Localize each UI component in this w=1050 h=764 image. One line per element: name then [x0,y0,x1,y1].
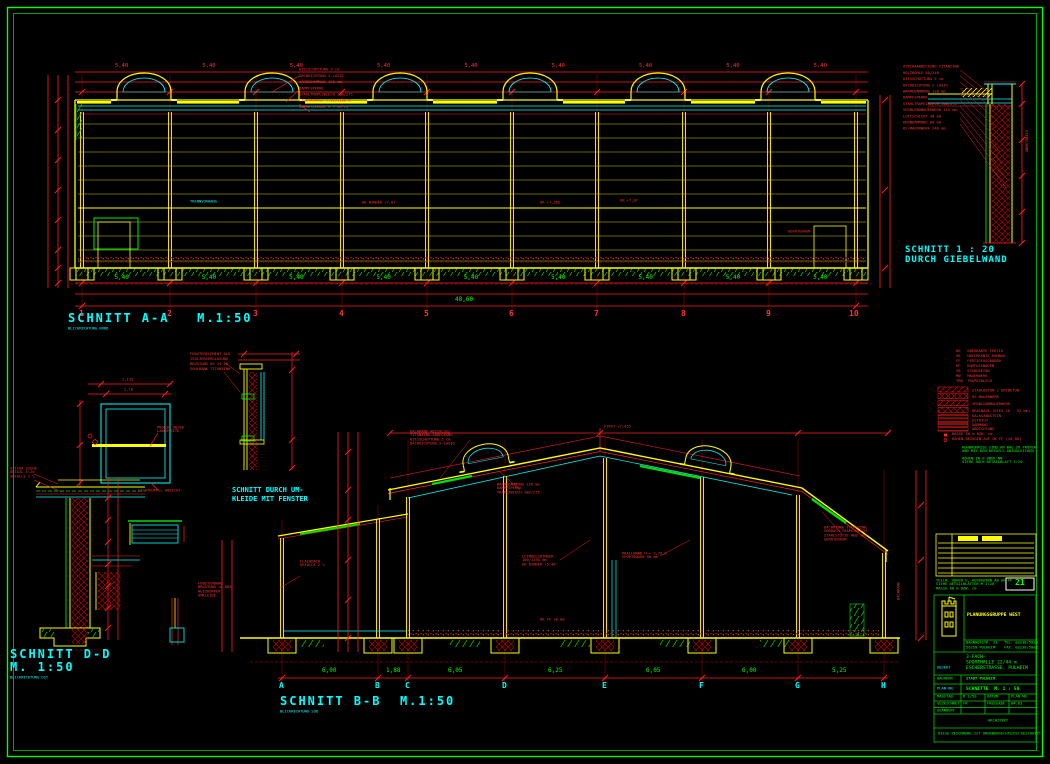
titleblock-footer: DIESE ZEICHNUNG IST URHEBERRECHTLICH GES… [938,732,1041,736]
titleblock-contact-2: 50259 PULHEIM FAX: 02238/5012 [966,646,1038,650]
legend-lined-labels: KALKSANDSTEINESTRICHDÄMMUNGABDICHTUNG [972,414,1050,432]
aa-room-label: GERÄTERAUM [788,230,810,234]
bb-eave-left-callouts: DACHRAND-ABSCHLUSSTITANZINK-ABDECKUNGKIE… [410,430,491,446]
section-bb-title-text: SCHNITT B-B [280,694,381,708]
dd-callouts: ATTIKA SIEHEDETAIL 1:20GEFÄLLE 2 % [10,467,72,479]
section-bb-title: SCHNITT B-B M.1:50 [280,695,455,708]
sky-profil-label: PROFIL 40/80LÄNGSSEITE [157,426,231,434]
axis-letter: F [699,682,704,690]
bb-bay-dim: 6,00 [322,668,336,674]
axis-letter: H [881,682,886,690]
aa-total-dimension: 48,60 [455,297,473,303]
detail-giebel-title-2: DURCH GIEBELWAND [905,256,1008,265]
bb-bay-dim: 1,88 [386,668,400,674]
bb-bay-dim: 6,05 [646,668,660,674]
axis-number: 7 [594,310,599,318]
bb-floor-label: OK FF ±0,00 [540,618,565,622]
axis-number: 9 [766,310,771,318]
titleblock-firm: PLANUNGSGRUPPE WEST [967,612,1021,617]
axis-letter: B [375,682,380,690]
titleblock-datum-label: DATUM [987,695,998,699]
axis-number: 3 [253,310,258,318]
giebel-callouts: ATTIKAABDECKUNG TITANZINKHOLZBOHLE 50/24… [903,64,1002,132]
legend-hatch-labels: STAHLBETON / ORTBETONKS-MAUERWERKVERBLEN… [972,387,1050,414]
axis-number: 2 [167,310,172,318]
bb-eave-right-callouts: DACHRINNE TITANZINKVORDACH TRAPEZBLECHST… [824,526,898,542]
sky-dim-top: 2,135 [122,378,133,382]
axis-letter: E [602,682,607,690]
titleblock-freigabe-value: 04.03 [1011,702,1022,706]
section-aa-title: SCHNITT A-A M.1:50 [68,312,253,325]
bb-bay-dim: 5,25 [832,668,846,674]
titleblock-contact-1: BAHNHOFSTR. 31 TEL: 02238/5010 [966,641,1038,645]
bb-bay-dim: 6,25 [548,668,562,674]
axis-letter: D [502,682,507,690]
axis-letter: C [405,682,410,690]
sky-dim-mid: 2,10 [124,388,133,392]
aa-elevation-label: OK +7,265 [540,201,560,205]
cad-drawing-page: SCHNITT A-A M.1:50 BLICKRICHTUNG NORD 1 … [0,0,1050,764]
bb-bay-dim: 6,05 [448,668,462,674]
section-aa-subtitle: BLICKRICHTUNG NORD [68,327,108,331]
aa-bay-dimensions: 5,405,405,405,405,405,405,405,405,40 [78,275,864,281]
section-dd-title: SCHNITT D-D [10,648,111,661]
sky-caption: LICHTKUPPEL ANSICHT [138,489,181,493]
detail-umkleide-title-1: SCHNITT DURCH UM- [232,487,304,494]
titleblock-masstab-value: M 1/50 [963,695,976,699]
legend-note-1: ROHBAUMASSE SIND AM BAU ZU PRÜFENUND MIT… [962,446,1050,454]
titleblock-project: 3-FACH-SPORTHALLE 22/44 mESCHERSTRASSE, … [966,654,1050,670]
aa-curtain-label: TRENNVORHANG [190,200,217,204]
section-dd-subtitle: BLICKRICHTUNG OST [10,676,48,680]
aa-elevation-label: UK +7,07 [620,199,638,203]
titleblock-bauherr-value: STADT PULHEIM [966,677,995,681]
section-aa-scale: M.1:50 [197,311,252,325]
aa-top-dimensions: 5,405,405,405,405,405,405,405,405,40 [78,64,864,70]
section-dd-scale: M. 1:50 [10,661,75,674]
label-overlay: SCHNITT A-A M.1:50 BLICKRICHTUNG NORD 1 … [0,0,1050,764]
axis-number: 10 [849,310,859,318]
axis-letter: A [279,682,284,690]
bb-side-label: DACHRAND [897,582,901,600]
bb-apex-label: FIRST +7,435 [604,425,631,429]
section-bb-scale: M.1:50 [400,694,455,708]
section-bb-subtitle: BLICKRICHTUNG SÜD [280,710,318,714]
axis-number: 8 [681,310,686,318]
titleblock-objekt-label: OBJEKT [937,666,950,670]
aa-elevation-label: UK BINDER +7,07 [362,201,396,205]
revision-note: TEILW. HÖHEN U. AUFBAUTEN AB OK FFSIEHE … [936,579,1017,591]
aa-roof-callouts: KIESSCHÜTTUNG 5 cmDACHDICHTUNG 2-LAGIGWÄ… [299,67,423,110]
detail-umkleide-title-2: KLEIDE MIT FENSTER [232,496,308,503]
titleblock-gezeichnet-label: GEZEICHNET [937,702,959,706]
legend-abbreviations: OK OBERKANTE FERTIGUK UNTERKANTE ROHBAUF… [956,349,1049,384]
titleblock-plannr-label: PLAN-NR [1011,695,1027,699]
umkleide-callouts: FENSTERELEMENT ALUISOLIERVERGLASUNGBRÜST… [190,352,271,372]
bb-annex-callouts: FENSTERBANDBRÜSTUNG +0,885HEIZKÖRPERUMKL… [198,582,260,598]
bb-annex2-callouts: FLACHDACHGEFÄLLE 2 % [300,560,356,568]
titleblock-gezeichnet-value: FR [963,702,967,706]
titleblock-plan-label: PLAN-NR. [937,687,955,691]
bb-mid2-callouts: PRALLWAND H = 2,75 mSPORTBODEN 90 mm [622,552,696,560]
titleblock-masstab-label: MASSTAB [937,695,953,699]
legend-symbol-labels: MASSE IN m BZW. cmHÖHEN BEZOGEN AUF OK F… [952,432,1050,442]
titleblock-bauherr-label: BAUHERR [937,677,953,681]
giebel-side-label: GIEBELWAND [1024,130,1028,152]
titleblock-architekt-label: ARCHITEKT [988,719,1008,723]
bb-mid-callouts: LEIMHOLZBINDER100/1250 mmUK BINDER +5,48 [522,555,590,567]
bb-bay-dim: 6,00 [742,668,756,674]
titleblock-geaendert-label: GEÄNDERT [937,709,955,713]
titleblock-freigabe-label: FREIGABE [987,702,1005,706]
titleblock-plan-value: SCHNITTE M. 1 : 50 [966,686,1020,691]
legend-note-2: HÖHEN IN m ÜBER NNSIEHE AUCH DETAILBLATT… [962,457,1050,465]
axis-number: 5 [424,310,429,318]
axis-number: 6 [509,310,514,318]
axis-number: 1 [79,310,84,318]
sheet-number: 21 [1015,579,1025,587]
axis-letter: G [795,682,800,690]
bb-slope-callouts: WÄRMEDÄMMUNG 120 mmDAMPFSPERRETRAPEZBLEC… [497,483,578,495]
axis-number: 4 [339,310,344,318]
